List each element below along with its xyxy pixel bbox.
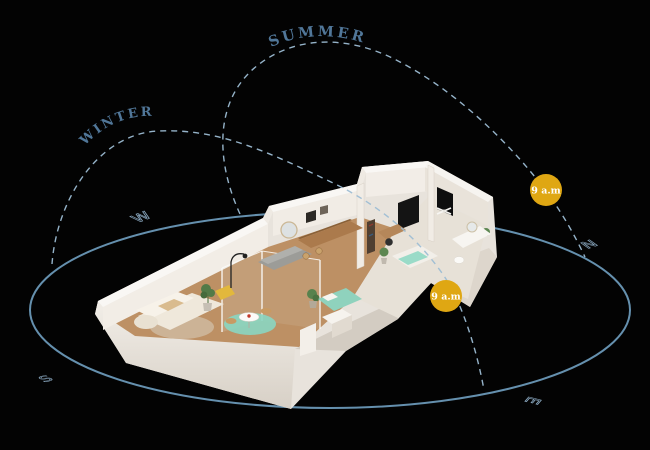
summer-sun-marker: 9 a.m [530, 174, 562, 206]
compass-south: S [36, 374, 57, 384]
sun-path-diagram: W N S E [0, 0, 650, 450]
winter-sun-marker: 9 a.m [430, 280, 462, 312]
compass-west: W [127, 209, 155, 225]
winter-label: WINTER [76, 105, 154, 149]
winter-sun-time: 9 a.m [431, 292, 460, 303]
bookshelf [367, 219, 375, 254]
diagram-canvas: W N S E [0, 0, 650, 450]
summer-sun-time: 9 a.m [531, 186, 560, 197]
compass-east: E [520, 395, 545, 406]
round-mirror [281, 222, 297, 238]
summer-label: SUMMER [266, 23, 369, 51]
